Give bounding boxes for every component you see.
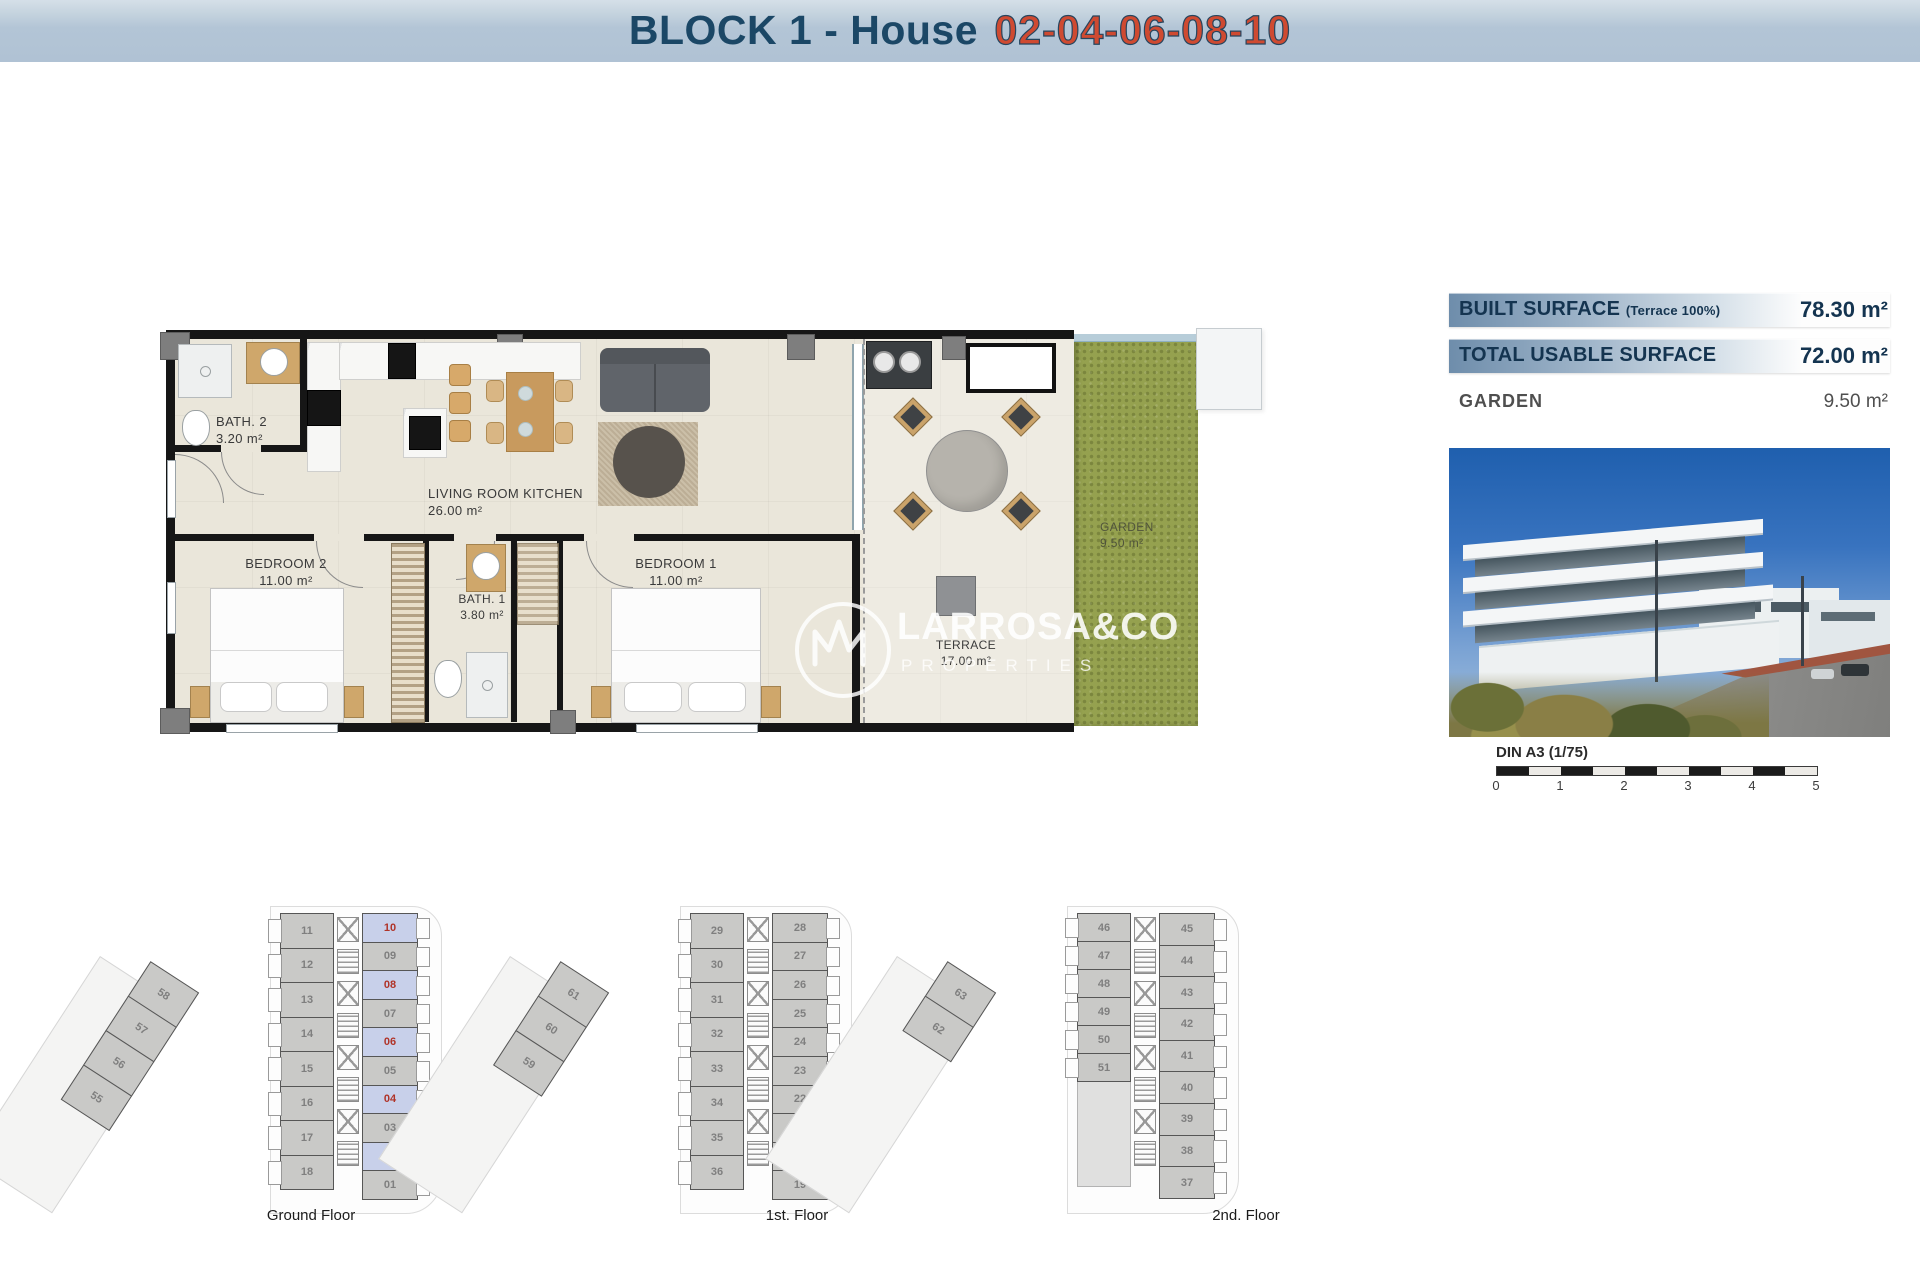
elevator-icon	[1134, 981, 1156, 1006]
unit-42: 42	[1159, 1008, 1215, 1041]
door-gap	[584, 534, 634, 541]
unit-40: 40	[1159, 1071, 1215, 1104]
built-surface-value: 78.30 m²	[1800, 297, 1888, 323]
unit-25: 25	[772, 999, 828, 1029]
door-gap	[454, 534, 496, 541]
built-surface-note: (Terrace 100%)	[1626, 303, 1720, 318]
wardrobe	[391, 543, 425, 723]
unit-13: 13	[280, 982, 334, 1018]
unit-11: 11	[280, 913, 334, 949]
unit-09: 09	[362, 942, 418, 972]
unit-34: 34	[690, 1086, 744, 1122]
elevator-icon	[337, 917, 359, 942]
stairs-icon	[747, 1077, 769, 1102]
wall-left	[166, 330, 175, 732]
info-row-built-surface: BUILT SURFACE (Terrace 100%) 78.30 m²	[1449, 293, 1890, 327]
unit-41: 41	[1159, 1040, 1215, 1073]
dining-chair	[486, 380, 504, 402]
elevator-icon	[337, 1109, 359, 1134]
unit-24: 24	[772, 1027, 828, 1057]
terrace-table	[926, 430, 1008, 512]
room-label-living: LIVING ROOM KITCHEN 26.00 m²	[428, 486, 583, 520]
larrosa-logo-icon	[795, 602, 891, 698]
scale-segment	[1497, 767, 1529, 775]
nightstand	[591, 686, 611, 718]
watermark: LARROSA&CO PROPERTIES	[795, 598, 1135, 702]
scale-segment	[1593, 767, 1625, 775]
stairs-icon	[337, 1013, 359, 1038]
floor-diagram-second: 6362 464748495051 454443424140393837 2nd…	[881, 898, 1341, 1233]
scale-segment	[1785, 767, 1817, 775]
scale-segment	[1561, 767, 1593, 775]
scale-segment	[1753, 767, 1785, 775]
garden-label: GARDEN	[1459, 391, 1543, 412]
sink	[472, 552, 500, 580]
storage-box	[966, 343, 1056, 393]
window	[636, 724, 758, 733]
unit-39: 39	[1159, 1103, 1215, 1136]
pillar	[942, 336, 966, 360]
unit-16: 16	[280, 1086, 334, 1122]
nightstand	[761, 686, 781, 718]
scale-bar	[1496, 766, 1818, 776]
nightstand	[344, 686, 364, 718]
elevator-icon	[337, 1045, 359, 1070]
pillar	[787, 334, 815, 360]
scale-segment	[1657, 767, 1689, 775]
room-label-bedroom2: BEDROOM 2 11.00 m²	[226, 556, 346, 590]
stairs-icon	[1134, 1077, 1156, 1102]
toilet	[434, 660, 462, 698]
scale-tick: 0	[1489, 778, 1503, 793]
car	[1841, 664, 1869, 676]
wall-bath2	[300, 339, 307, 452]
elevator-icon	[1134, 917, 1156, 942]
stairs-icon	[747, 949, 769, 974]
stairs-icon	[1134, 1013, 1156, 1038]
built-surface-label: BUILT SURFACE	[1459, 298, 1620, 320]
building-window	[1771, 602, 1811, 612]
garden-planter	[1196, 328, 1262, 410]
unit-37: 37	[1159, 1166, 1215, 1199]
nightstand	[190, 686, 210, 718]
stair-core	[746, 914, 770, 1166]
unit-45: 45	[1159, 913, 1215, 946]
left-unit-column: 464748495051	[1077, 914, 1131, 1187]
stairs-icon	[337, 1077, 359, 1102]
toilet	[182, 410, 210, 446]
room-label-bath2: BATH. 2 3.20 m²	[216, 414, 267, 448]
unit-38: 38	[1159, 1135, 1215, 1168]
pillow	[220, 682, 272, 712]
vegetation	[1449, 644, 1769, 737]
scale-tick: 4	[1745, 778, 1759, 793]
usable-surface-value: 72.00 m²	[1800, 343, 1888, 369]
right-unit-column: 454443424140393837	[1159, 914, 1215, 1199]
scale-tick: 1	[1553, 778, 1567, 793]
scale-tick: 3	[1681, 778, 1695, 793]
unit-44: 44	[1159, 945, 1215, 978]
unit-31: 31	[690, 982, 744, 1018]
dining-chair	[555, 380, 573, 402]
unit-35: 35	[690, 1120, 744, 1156]
dining-chair	[486, 422, 504, 444]
unit-15: 15	[280, 1051, 334, 1087]
scale-segment	[1529, 767, 1561, 775]
stairs-icon	[747, 1013, 769, 1038]
door-gap	[314, 534, 364, 541]
unit-43: 43	[1159, 976, 1215, 1009]
stairs-icon	[747, 1141, 769, 1166]
bar-stool	[449, 392, 471, 414]
stairs-icon	[1134, 1141, 1156, 1166]
usable-surface-label: TOTAL USABLE SURFACE	[1459, 344, 1716, 367]
pillar	[550, 710, 576, 734]
pillow	[276, 682, 328, 712]
stair-core	[1133, 914, 1157, 1166]
oven	[307, 390, 341, 426]
pillow	[688, 682, 746, 712]
unit-28: 28	[772, 913, 828, 943]
plate	[518, 386, 533, 401]
scale-segment	[1689, 767, 1721, 775]
wall-top	[166, 330, 1074, 339]
info-row-usable-surface: TOTAL USABLE SURFACE 72.00 m²	[1449, 339, 1890, 373]
unit-36: 36	[690, 1155, 744, 1191]
room-label-bedroom1: BEDROOM 1 11.00 m²	[616, 556, 736, 590]
shower	[466, 652, 508, 718]
floor-caption: 2nd. Floor	[1171, 1207, 1321, 1224]
scale-segment	[1721, 767, 1753, 775]
elevator-icon	[1134, 1045, 1156, 1070]
window	[167, 582, 176, 634]
stairs-icon	[337, 1141, 359, 1166]
unit-06: 06	[362, 1027, 418, 1057]
stairs-icon	[337, 949, 359, 974]
scale-tick: 2	[1617, 778, 1631, 793]
dining-table	[506, 372, 554, 452]
car	[1811, 669, 1834, 679]
unit-32: 32	[690, 1017, 744, 1053]
floor-caption: Ground Floor	[236, 1207, 386, 1224]
info-row-garden: GARDEN 9.50 m²	[1449, 384, 1890, 418]
stairs-icon	[1134, 949, 1156, 974]
unit-46: 46	[1077, 913, 1131, 942]
unlabeled-area	[1077, 1081, 1131, 1187]
pillow	[624, 682, 682, 712]
page-title-house-numbers: 02-04-06-08-10	[995, 7, 1292, 53]
bar-stool	[449, 420, 471, 442]
elevator-icon	[337, 981, 359, 1006]
left-unit-column: 2930313233343536	[690, 914, 744, 1190]
shower	[178, 344, 232, 398]
laundry-unit	[866, 341, 932, 389]
watermark-brand: LARROSA&CO	[897, 606, 1179, 649]
unit-51: 51	[1077, 1053, 1131, 1082]
building-window	[1821, 612, 1875, 621]
elevator-icon	[1134, 1109, 1156, 1134]
unit-07: 07	[362, 999, 418, 1029]
building-photo	[1449, 448, 1890, 737]
elevator-icon	[747, 917, 769, 942]
street-lamp	[1801, 576, 1804, 666]
unit-26: 26	[772, 970, 828, 1000]
elevator-icon	[747, 1109, 769, 1134]
closet	[517, 543, 559, 625]
unit-14: 14	[280, 1017, 334, 1053]
unit-08: 08	[362, 970, 418, 1000]
unit-30: 30	[690, 948, 744, 984]
sofa	[600, 348, 710, 412]
unit-17: 17	[280, 1120, 334, 1156]
unit-05: 05	[362, 1056, 418, 1086]
title-bar: BLOCK 1 - House 02-04-06-08-10	[0, 0, 1920, 62]
unit-12: 12	[280, 948, 334, 984]
garden-value: 9.50 m²	[1824, 391, 1888, 413]
round-rug	[613, 426, 685, 498]
bar-stool	[449, 364, 471, 386]
elevator-icon	[747, 981, 769, 1006]
cooktop	[409, 416, 441, 450]
plate	[518, 422, 533, 437]
left-unit-column: 1112131415161718	[280, 914, 334, 1190]
elevator-icon	[747, 1045, 769, 1070]
window	[226, 724, 338, 733]
unit-47: 47	[1077, 941, 1131, 970]
kitchen-appliance	[388, 343, 416, 379]
sink	[260, 348, 288, 376]
dining-chair	[555, 422, 573, 444]
scale-tick: 5	[1809, 778, 1823, 793]
unit-18: 18	[280, 1155, 334, 1191]
watermark-sub: PROPERTIES	[901, 656, 1100, 676]
scale-ticks: 012345	[1496, 778, 1818, 794]
brochure-page: BLOCK 1 - House 02-04-06-08-10	[0, 0, 1920, 1280]
unit-49: 49	[1077, 997, 1131, 1026]
garden-glass-fence	[1074, 334, 1198, 342]
unit-48: 48	[1077, 969, 1131, 998]
room-label-garden: GARDEN 9.50 m²	[1100, 520, 1154, 551]
room-label-bath1: BATH. 1 3.80 m²	[444, 592, 520, 623]
page-title: BLOCK 1 - House	[629, 7, 978, 53]
pillar	[160, 708, 190, 734]
unit-33: 33	[690, 1051, 744, 1087]
scale-segment	[1625, 767, 1657, 775]
unit-10: 10	[362, 913, 418, 943]
scale-label: DIN A3 (1/75)	[1496, 744, 1588, 761]
wall-mid	[166, 534, 860, 541]
stair-core	[336, 914, 360, 1166]
unit-29: 29	[690, 913, 744, 949]
unit-50: 50	[1077, 1025, 1131, 1054]
unit-27: 27	[772, 942, 828, 972]
